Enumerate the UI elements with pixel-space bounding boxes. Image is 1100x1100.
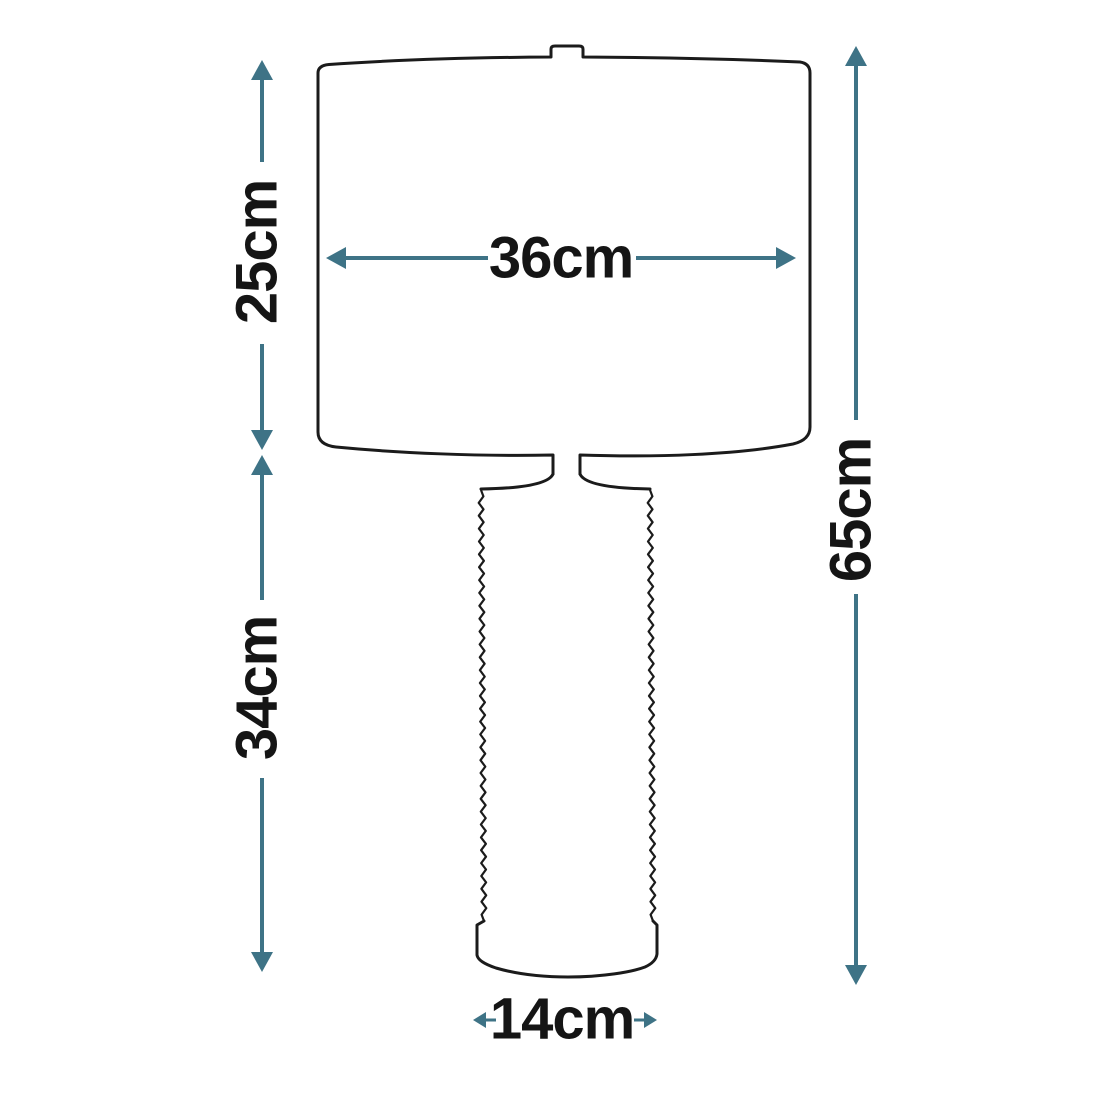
lamp-dimension-diagram: 25cm 34cm 65cm 36cm 14cm <box>0 0 1100 1100</box>
arrowhead-right-icon <box>644 1012 657 1028</box>
arrowhead-right-icon <box>776 247 796 269</box>
base-width-label: 14cm <box>490 987 634 1052</box>
shade-width-label: 36cm <box>489 226 633 291</box>
shade-height-label: 25cm <box>225 180 290 324</box>
lamp-base-neck-outline <box>481 474 650 489</box>
lamp-base-plinth-outline <box>477 921 657 977</box>
base-height-dimension: 34cm <box>225 455 290 972</box>
shade-height-dimension: 25cm <box>225 60 290 450</box>
arrowhead-down-icon <box>845 965 867 985</box>
lamp-base-ribbed-edge-right <box>648 490 656 921</box>
shade-width-dimension: 36cm <box>326 226 796 291</box>
lamp-base-ribbed-edge-left <box>479 490 487 921</box>
base-height-label: 34cm <box>225 616 290 760</box>
total-height-dimension: 65cm <box>819 46 884 985</box>
base-width-dimension: 14cm <box>473 987 657 1052</box>
arrowhead-down-icon <box>251 952 273 972</box>
arrowhead-down-icon <box>251 430 273 450</box>
total-height-label: 65cm <box>819 438 884 582</box>
lamp-outline <box>318 46 810 977</box>
